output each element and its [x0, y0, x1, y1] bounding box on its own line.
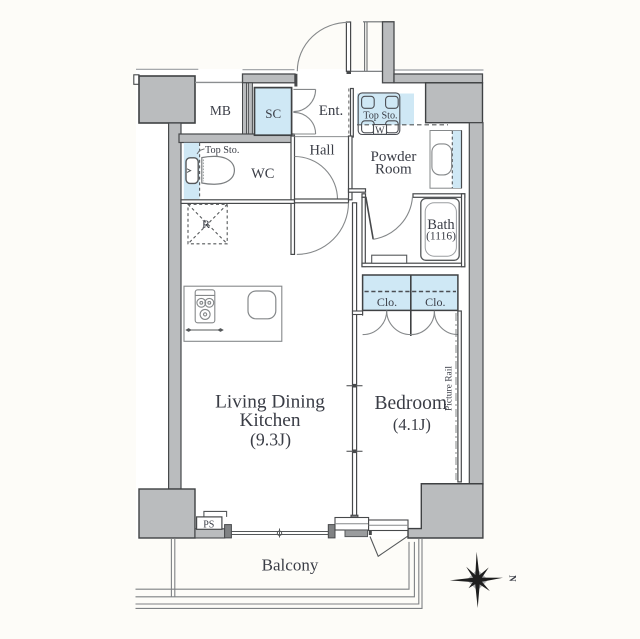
svg-text:Bedroom: Bedroom	[375, 393, 448, 414]
svg-text:Top Sto.: Top Sto.	[363, 111, 397, 122]
svg-text:(4.1J): (4.1J)	[393, 415, 431, 434]
svg-text:SC: SC	[265, 106, 281, 121]
svg-text:Balcony: Balcony	[262, 556, 319, 575]
svg-text:(9.3J): (9.3J)	[250, 430, 291, 451]
svg-text:Clo.: Clo.	[377, 295, 397, 309]
svg-text:Kitchen: Kitchen	[239, 410, 300, 431]
svg-text:MB: MB	[210, 103, 231, 118]
svg-text:W: W	[375, 126, 385, 137]
svg-text:Ent.: Ent.	[319, 103, 344, 119]
svg-text:(1116): (1116)	[426, 231, 456, 243]
svg-text:Clo.: Clo.	[425, 295, 445, 309]
svg-text:WC: WC	[251, 166, 274, 182]
svg-text:N: N	[507, 575, 517, 582]
svg-text:PS: PS	[203, 520, 214, 531]
svg-text:R: R	[202, 217, 210, 231]
svg-text:Hall: Hall	[310, 143, 335, 159]
svg-text:Room: Room	[375, 161, 412, 177]
svg-text:Top Sto.: Top Sto.	[205, 145, 239, 156]
